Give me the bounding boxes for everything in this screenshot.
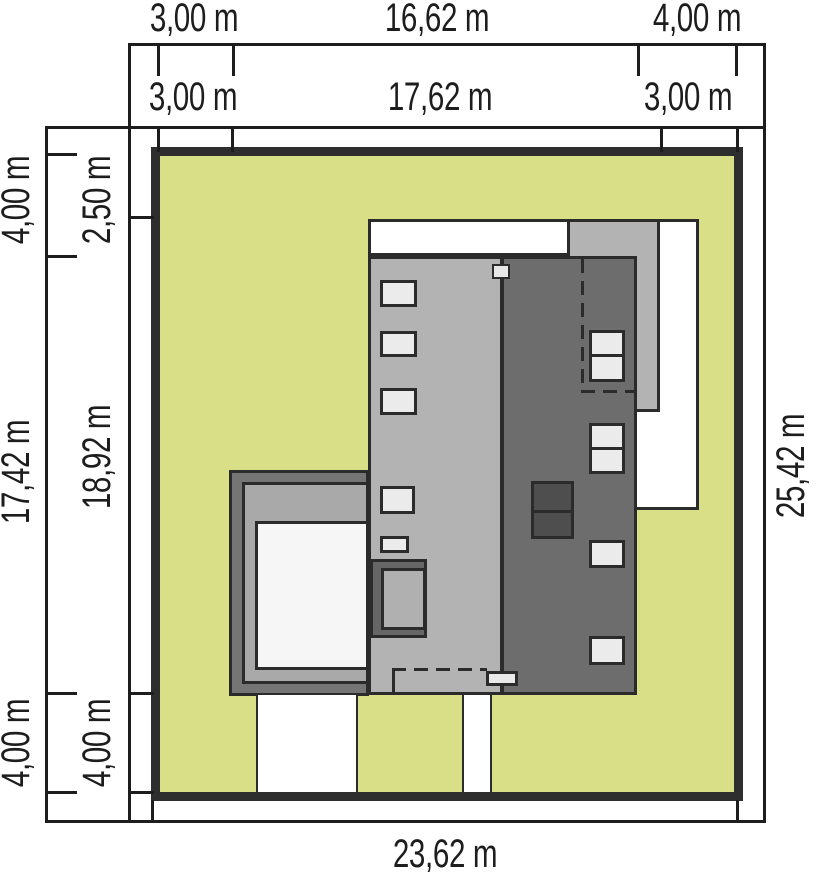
- roof-window-4: [589, 636, 625, 665]
- dim-label-top-inner-mid: 17,62 m: [388, 77, 492, 117]
- skylight-4: [380, 486, 415, 514]
- tick: [735, 43, 738, 76]
- dim-rail-right: [763, 43, 766, 823]
- driveway: [256, 695, 358, 793]
- dim-label-left-outer-top: 4,00 m: [0, 156, 36, 244]
- tick: [231, 129, 234, 152]
- south-mark-line: [392, 668, 395, 695]
- dim-label-left-inner-bottom: 4,00 m: [77, 699, 117, 787]
- dim-label-top-outer-mid: 16,62 m: [385, 0, 489, 38]
- tick: [128, 692, 154, 695]
- dim-label-top-inner-left: 3,00 m: [149, 77, 237, 117]
- tick: [232, 43, 235, 76]
- dim-label-top-outer-left: 3,00 m: [150, 0, 238, 38]
- tick: [45, 791, 77, 794]
- tick: [128, 216, 154, 219]
- dim-label-left-outer-mid: 17,42 m: [0, 420, 36, 524]
- dim-label-left-inner-mid: 18,92 m: [77, 405, 117, 509]
- dim-label-left-outer-bottom: 4,00 m: [0, 699, 36, 787]
- west-terrace-floor: [255, 521, 369, 670]
- tick: [157, 129, 160, 152]
- skylight-1: [380, 280, 417, 307]
- roof-window-3: [589, 540, 625, 568]
- eaves-dashed-line-vertical: [581, 259, 584, 391]
- skylight-2: [380, 331, 417, 357]
- tick: [45, 153, 77, 156]
- tick: [151, 800, 154, 823]
- tick: [45, 255, 77, 258]
- tick: [45, 692, 77, 695]
- dim-label-right: 25,42 m: [771, 414, 811, 518]
- roof-window-pair-1: [589, 330, 625, 382]
- east-patio-upper: [660, 219, 699, 410]
- tick: [157, 43, 160, 76]
- north-terrace: [368, 219, 570, 256]
- dim-rail-left-outer: [45, 126, 48, 823]
- skylight-5: [380, 536, 409, 553]
- site-plan: 3,00 m 16,62 m 4,00 m 3,00 m 17,62 m 3,0…: [0, 0, 816, 875]
- dim-label-top-outer-right: 4,00 m: [653, 0, 741, 38]
- south-dashed-line: [392, 668, 487, 671]
- roof-east-slope: [501, 256, 637, 695]
- entry-step: [486, 671, 518, 686]
- tick: [736, 800, 739, 823]
- dim-rail-top-inner: [45, 126, 766, 129]
- dim-label-left-inner-top: 2,50 m: [77, 156, 117, 244]
- tick: [637, 43, 640, 76]
- walkway: [462, 695, 492, 793]
- dim-label-top-inner-right: 3,00 m: [644, 77, 732, 117]
- east-patio-lower: [637, 410, 699, 510]
- skylight-3: [380, 388, 417, 415]
- tick: [736, 129, 739, 152]
- tick: [660, 129, 663, 152]
- roof-window-pair-2: [589, 423, 625, 474]
- dim-rail-top: [128, 43, 766, 46]
- tick: [128, 791, 154, 794]
- ridge-chimney: [492, 264, 510, 279]
- eaves-dashed-line-horizontal: [581, 390, 637, 393]
- dim-label-bottom: 23,62 m: [393, 834, 497, 874]
- dim-rail-left-inner: [128, 43, 131, 823]
- entry-porch-inner: [381, 568, 426, 630]
- chimney: [531, 481, 574, 539]
